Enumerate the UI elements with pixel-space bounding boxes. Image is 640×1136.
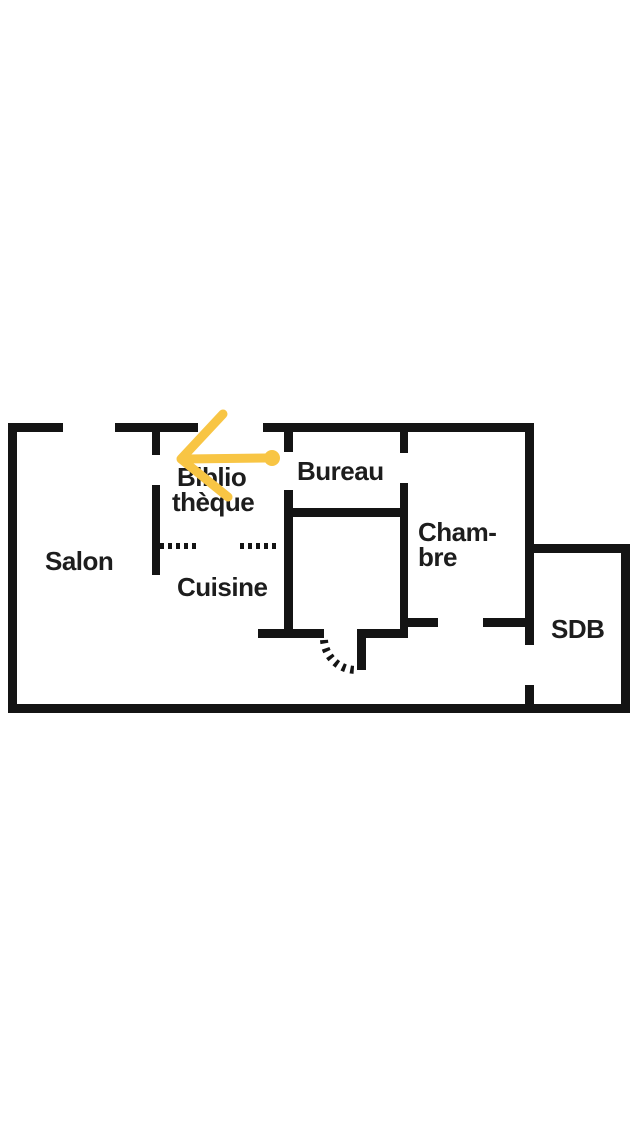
wall-bureau-chambre-wall-upper xyxy=(400,423,408,453)
wall-biblio-bureau-wall xyxy=(284,432,293,452)
room-label-cuisine: Cuisine xyxy=(177,572,267,602)
annotation-arrow-shaft xyxy=(186,458,266,459)
wall-left-wall xyxy=(8,423,17,713)
wall-storage-top-wall xyxy=(293,508,400,517)
wall-bureau-chambre-wall-lower xyxy=(400,483,408,638)
wall-sdb-right-wall xyxy=(621,544,630,713)
wall-top-wall-right xyxy=(263,423,534,432)
floor-plan-svg: SalonBibliothèqueBureauCuisineCham-breSD… xyxy=(0,0,640,1136)
annotation-arrow-dot xyxy=(264,450,280,466)
wall-salon-biblio-wall-upper xyxy=(152,432,160,455)
wall-storage-bottom-wall-left xyxy=(258,629,324,638)
wall-right-wall-upper xyxy=(525,423,534,645)
wall-top-wall-mid xyxy=(115,423,198,432)
wall-bottom-wall xyxy=(8,704,630,713)
room-label-salon: Salon xyxy=(45,546,113,576)
wall-chambre-bottom-wall-right xyxy=(483,618,525,627)
wall-chambre-bottom-wall-left xyxy=(408,618,438,627)
wall-sdb-top-wall xyxy=(534,544,630,553)
wall-cuisine-storage-wall xyxy=(284,490,293,638)
wall-right-wall-lower xyxy=(525,685,534,713)
storage-door-swing-arc xyxy=(324,640,356,670)
room-label-bureau: Bureau xyxy=(297,456,384,486)
wall-salon-biblio-wall-lower xyxy=(152,485,160,575)
room-label-sdb: SDB xyxy=(551,614,604,644)
wall-storage-door-jamb xyxy=(357,629,366,670)
screenshot-canvas: SalonBibliothèqueBureauCuisineCham-breSD… xyxy=(0,0,640,1136)
room-label-chambre-line2: bre xyxy=(418,542,457,572)
room-label-bibliotheque-line2: thèque xyxy=(172,487,254,517)
